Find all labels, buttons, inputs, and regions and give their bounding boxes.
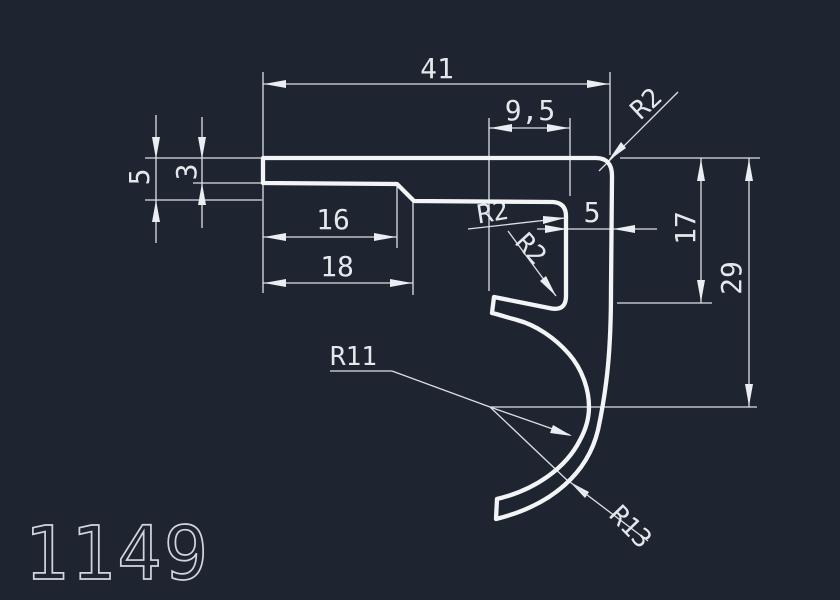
arrowhead [543,216,565,224]
dim-label-5-wall: 5 [584,196,601,229]
dim-label-9-5: 9,5 [505,94,556,127]
arrowhead [390,279,412,287]
radius-label-r2-top: R2 [625,83,668,126]
dimension-29: 29 [490,158,757,407]
dimension-41: 41 [263,52,610,293]
leader-r13: R13 [570,482,657,555]
arrowhead [152,137,160,159]
part-number: 1149 [24,511,210,597]
arrowhead [745,159,753,181]
arrowhead [545,225,567,233]
cad-drawing-canvas[interactable]: 41 9,5 5 3 [0,0,840,600]
dim-label-41: 41 [420,52,454,85]
arrowhead [745,384,753,406]
arrowhead [264,233,286,241]
dimension-16: 16 [263,185,397,248]
dim-label-17: 17 [669,211,702,245]
radius-label-r13: R13 [603,500,657,555]
arrowhead [264,80,286,88]
arrowhead [198,137,206,159]
dimension-3: 3 [170,117,262,228]
leader-r2-pocket-bottom: R2 [508,228,556,296]
arrowhead [550,425,572,436]
arrowhead [540,276,556,296]
dim-label-5-left: 5 [123,169,156,186]
arrowhead [587,80,609,88]
dim-label-3: 3 [170,164,203,181]
leader-line [392,371,490,407]
dim-label-16: 16 [316,203,350,236]
dim-label-29: 29 [715,261,748,295]
arrowhead [374,233,396,241]
arrowhead [198,183,206,205]
radius-label-r11: R11 [330,342,377,372]
arrowhead [264,279,286,287]
arrowhead [697,280,705,302]
arrowhead [697,159,705,181]
leader-r11: R11 [330,342,572,481]
arrowhead [152,200,160,222]
arrowhead [613,225,635,233]
dimensions-layer: 41 9,5 5 3 [123,52,760,555]
dim-label-18: 18 [320,250,354,283]
radius-label-r2-pocket-bottom: R2 [509,228,552,271]
